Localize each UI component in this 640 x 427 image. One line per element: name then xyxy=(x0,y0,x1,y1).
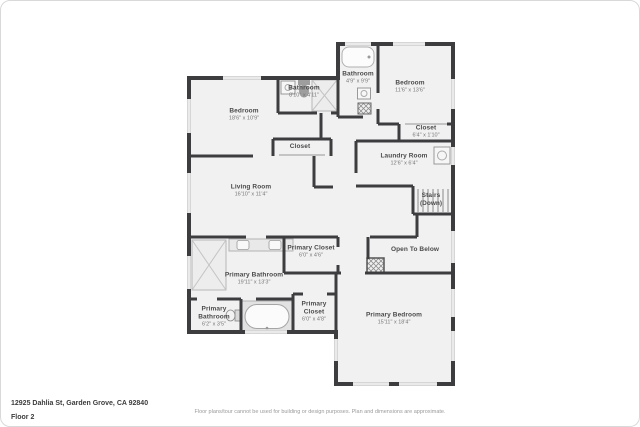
toilet-icon xyxy=(358,103,371,114)
address-text: 12925 Dahlia St, Garden Grove, CA 92840 xyxy=(11,400,148,407)
soaking-tub-icon xyxy=(241,301,293,332)
stairs-treads-icon xyxy=(418,189,448,212)
sink-icon xyxy=(358,88,371,99)
floorplan-page: Bathroom 4'9" x 9'9" Bedroom 11'6" x 13'… xyxy=(0,0,640,427)
shower-icon xyxy=(312,80,337,111)
toilet-icon xyxy=(226,310,240,321)
floorplan-graphic xyxy=(1,1,640,427)
washer-icon xyxy=(434,147,450,164)
floor-label: Floor 2 xyxy=(11,414,34,421)
bathtub-icon xyxy=(342,47,374,67)
shower-icon xyxy=(192,240,226,290)
sink-icon xyxy=(281,81,295,94)
chimney-hatch-icon xyxy=(367,258,384,273)
disclaimer-text: Floor plans/tour cannot be used for buil… xyxy=(1,409,639,415)
